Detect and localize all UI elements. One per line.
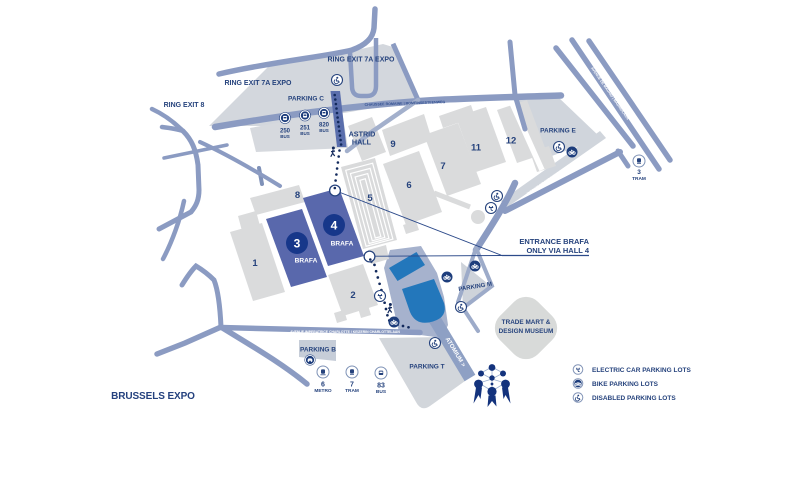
- svg-text:11: 11: [471, 143, 482, 154]
- svg-text:BRUSSELS EXPO: BRUSSELS EXPO: [111, 391, 195, 402]
- svg-text:DISABLED PARKING LOTS: DISABLED PARKING LOTS: [592, 395, 676, 402]
- svg-text:1: 1: [252, 258, 258, 269]
- svg-text:5: 5: [367, 193, 373, 204]
- svg-text:3: 3: [294, 236, 301, 250]
- svg-text:2: 2: [350, 290, 355, 301]
- svg-text:BUS: BUS: [319, 128, 329, 133]
- svg-text:BRAFA: BRAFA: [331, 241, 354, 248]
- svg-text:7: 7: [440, 161, 445, 172]
- svg-text:DESIGN MUSEUM: DESIGN MUSEUM: [499, 328, 554, 335]
- svg-text:4: 4: [331, 218, 338, 232]
- svg-text:BUS: BUS: [376, 389, 387, 395]
- svg-text:TRAM: TRAM: [632, 176, 646, 182]
- svg-text:BUS: BUS: [280, 134, 290, 139]
- svg-text:HALL: HALL: [352, 137, 372, 146]
- svg-text:ONLY VIA HALL 4: ONLY VIA HALL 4: [526, 246, 589, 255]
- svg-text:ELECTRIC CAR PARKING LOTS: ELECTRIC CAR PARKING LOTS: [592, 367, 691, 374]
- svg-text:PARKING E: PARKING E: [540, 128, 576, 135]
- svg-text:PARKING B: PARKING B: [300, 347, 336, 354]
- svg-text:83: 83: [377, 383, 385, 390]
- svg-text:TRADE MART &: TRADE MART &: [502, 319, 551, 326]
- svg-text:8: 8: [295, 190, 300, 201]
- svg-text:6: 6: [406, 180, 411, 191]
- svg-text:RING EXIT 7A EXPO: RING EXIT 7A EXPO: [327, 57, 395, 64]
- svg-text:METRO: METRO: [314, 388, 332, 394]
- svg-text:ENTRANCE BRAFA: ENTRANCE BRAFA: [519, 237, 589, 246]
- svg-text:6: 6: [321, 382, 325, 389]
- svg-text:3: 3: [637, 169, 641, 176]
- svg-text:BIKE PARKING LOTS: BIKE PARKING LOTS: [592, 381, 659, 388]
- svg-text:BRAFA: BRAFA: [295, 258, 318, 265]
- svg-text:PARKING T: PARKING T: [409, 364, 444, 371]
- svg-text:9: 9: [390, 139, 395, 150]
- svg-text:RING EXIT 7A EXPO: RING EXIT 7A EXPO: [224, 80, 292, 87]
- svg-text:RING EXIT 8: RING EXIT 8: [164, 102, 205, 109]
- svg-text:7: 7: [350, 382, 354, 389]
- svg-text:TRAM: TRAM: [345, 388, 359, 394]
- svg-text:BUS: BUS: [300, 131, 310, 136]
- svg-text:12: 12: [506, 136, 517, 147]
- svg-text:AVENUE IMPERATRICE CHARLOTTE /: AVENUE IMPERATRICE CHARLOTTE / KEIZERIN …: [290, 330, 400, 334]
- svg-text:PARKING C: PARKING C: [288, 96, 324, 103]
